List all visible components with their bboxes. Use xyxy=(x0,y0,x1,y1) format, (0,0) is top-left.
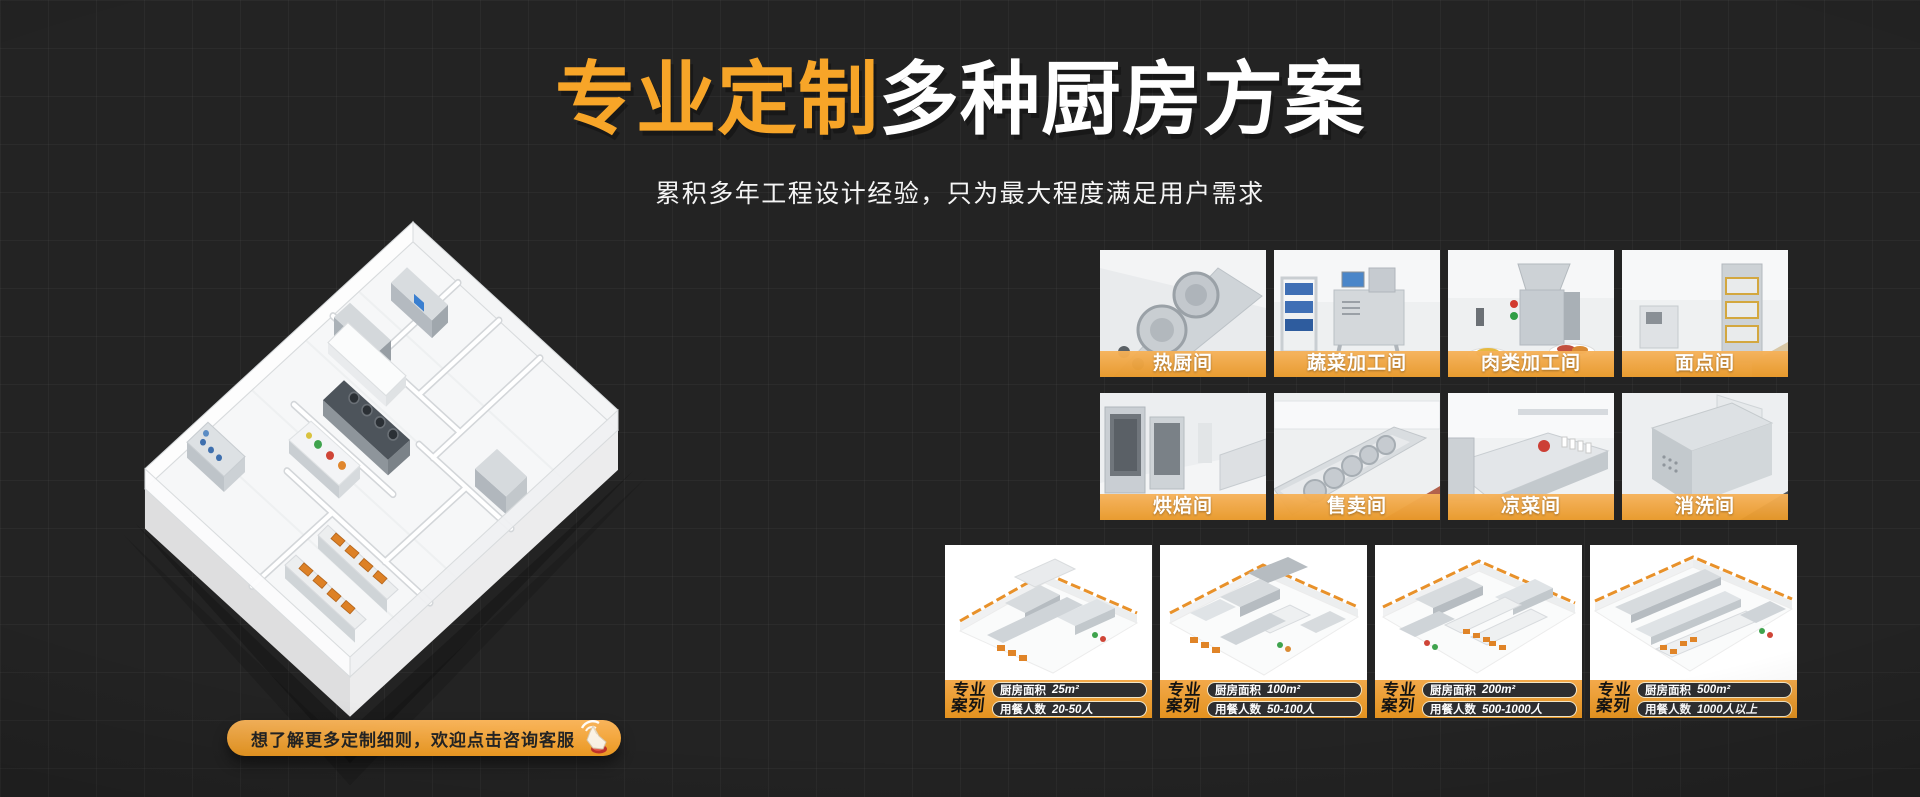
room-label: 肉类加工间 xyxy=(1448,351,1614,377)
case-pills: 厨房面积 500m² 用餐人数 1000人以上 xyxy=(1637,682,1792,717)
case-label-bar: 专业 案列 厨房面积 200m² 用餐人数 500-1000人 xyxy=(1375,680,1582,718)
case-label-bar: 专业 案列 厨房面积 25m² 用餐人数 20-50人 xyxy=(945,680,1152,718)
room-tile-cold-dish: 凉菜间 xyxy=(1448,393,1614,520)
case-card-row: 专业 案列 厨房面积 25m² 用餐人数 20-50人 xyxy=(945,545,1797,718)
room-label: 烘焙间 xyxy=(1100,494,1266,520)
room-label: 蔬菜加工间 xyxy=(1274,351,1440,377)
case-badge: 专业 案列 xyxy=(950,683,987,714)
case-render-200 xyxy=(1375,545,1582,680)
case-pills: 厨房面积 200m² 用餐人数 500-1000人 xyxy=(1422,682,1577,717)
room-tile-dishwashing: 消洗间 xyxy=(1622,393,1788,520)
case-pills: 厨房面积 25m² 用餐人数 20-50人 xyxy=(992,682,1147,717)
page-title: 专业定制多种厨房方案 xyxy=(0,58,1920,142)
case-card-100: 专业 案列 厨房面积 100m² 用餐人数 50-100人 xyxy=(1160,545,1367,718)
kitchen-area-pill: 厨房面积 200m² xyxy=(1422,682,1577,698)
case-render-500 xyxy=(1590,545,1797,680)
kitchen-area-pill: 厨房面积 100m² xyxy=(1207,682,1362,698)
promo-banner: 专业定制多种厨房方案 累积多年工程设计经验，只为最大程度满足用户需求 xyxy=(0,0,1920,797)
diners-pill: 用餐人数 20-50人 xyxy=(992,701,1147,717)
room-tile-serving: 售卖间 xyxy=(1274,393,1440,520)
kitchen-area-pill: 厨房面积 500m² xyxy=(1637,682,1792,698)
room-tile-pastry: 面点间 xyxy=(1622,250,1788,377)
room-tile-vegetable: 蔬菜加工间 xyxy=(1274,250,1440,377)
case-badge: 专业 案列 xyxy=(1165,683,1202,714)
diners-pill: 用餐人数 1000人以上 xyxy=(1637,701,1792,717)
case-card-25: 专业 案列 厨房面积 25m² 用餐人数 20-50人 xyxy=(945,545,1152,718)
case-card-200: 专业 案列 厨房面积 200m² 用餐人数 500-1000人 xyxy=(1375,545,1582,718)
case-label-bar: 专业 案列 厨房面积 100m² 用餐人数 50-100人 xyxy=(1160,680,1367,718)
room-label: 面点间 xyxy=(1622,351,1788,377)
case-render-100 xyxy=(1160,545,1367,680)
diners-pill: 用餐人数 50-100人 xyxy=(1207,701,1362,717)
consult-service-label: 想了解更多定制细则，欢迎点击咨询客服 xyxy=(251,726,575,751)
case-label-bar: 专业 案列 厨房面积 500m² 用餐人数 1000人以上 xyxy=(1590,680,1797,718)
consult-service-button[interactable]: 想了解更多定制细则，欢迎点击咨询客服 xyxy=(227,720,621,756)
case-badge: 专业 案列 xyxy=(1595,683,1632,714)
diners-pill: 用餐人数 500-1000人 xyxy=(1422,701,1577,717)
room-tile-hot-kitchen: 热厨间 xyxy=(1100,250,1266,377)
room-label: 热厨间 xyxy=(1100,351,1266,377)
room-tile-baking: 烘焙间 xyxy=(1100,393,1266,520)
kitchen-floorplan-illustration xyxy=(118,192,678,797)
page-title-rest: 多种厨房方案 xyxy=(879,55,1365,144)
case-pills: 厨房面积 100m² 用餐人数 50-100人 xyxy=(1207,682,1362,717)
room-label: 消洗间 xyxy=(1622,494,1788,520)
room-label: 售卖间 xyxy=(1274,494,1440,520)
case-card-500: 专业 案列 厨房面积 500m² 用餐人数 1000人以上 xyxy=(1590,545,1797,718)
case-render-25 xyxy=(945,545,1152,680)
kitchen-area-pill: 厨房面积 25m² xyxy=(992,682,1147,698)
hand-click-icon xyxy=(573,716,615,758)
page-title-highlight: 专业定制 xyxy=(555,55,879,144)
case-badge: 专业 案列 xyxy=(1380,683,1417,714)
room-tile-meat: 肉类加工间 xyxy=(1448,250,1614,377)
room-label: 凉菜间 xyxy=(1448,494,1614,520)
